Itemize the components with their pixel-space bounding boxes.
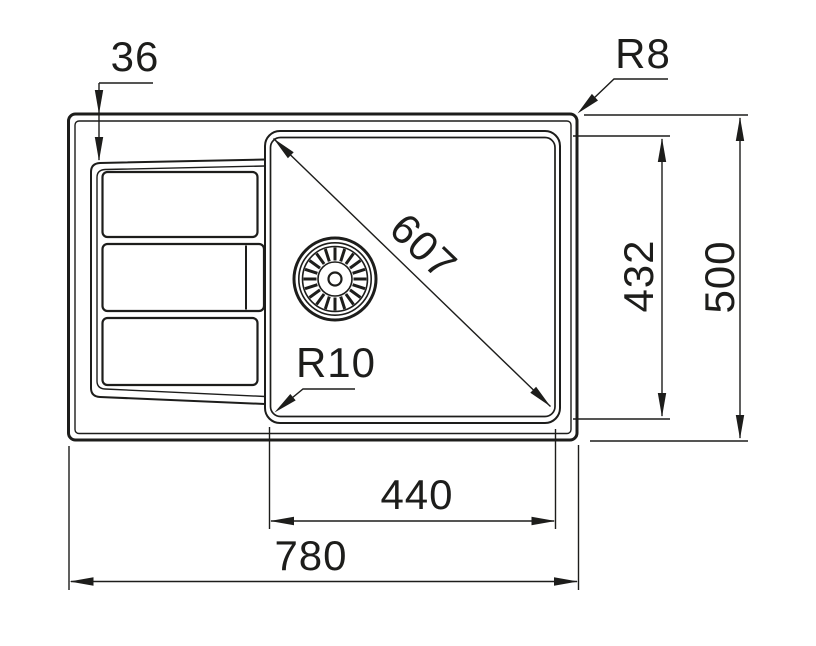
drawing-canvas: 607 36 R8 R10 432 500 440 — [0, 0, 816, 646]
drainboard-groove-bottom — [103, 318, 258, 385]
dimension-overall-width: 780 — [69, 445, 579, 590]
dim-label-500: 500 — [696, 240, 743, 313]
dim-label-440: 440 — [380, 471, 453, 518]
dimension-outer-radius: R8 — [578, 30, 671, 114]
arrowhead — [95, 137, 103, 161]
drain-center-hole — [329, 273, 342, 286]
arrowhead — [532, 517, 556, 525]
dim-label-r8: R8 — [615, 30, 671, 77]
drainboard-groove-top — [103, 172, 258, 237]
dim-label-36: 36 — [111, 33, 160, 80]
drainboard-outer-edge — [91, 160, 265, 405]
drainboard-inner-edge — [97, 166, 265, 397]
arrowhead — [95, 90, 103, 114]
dim-label-432: 432 — [615, 239, 662, 312]
arrowhead — [275, 394, 296, 413]
dimension-inner-depth: 432 — [573, 136, 670, 419]
dimension-bowl-radius: R10 — [275, 339, 377, 413]
drain-inner-ring — [318, 262, 352, 296]
dimension-inner-width: 440 — [270, 427, 556, 529]
arrowhead — [270, 517, 294, 525]
leader-line — [581, 79, 668, 111]
arrowhead — [736, 117, 744, 141]
drainboard-groove-middle — [103, 244, 265, 311]
dim-label-780: 780 — [274, 532, 347, 579]
dim-label-r10: R10 — [296, 339, 376, 386]
dimension-edge-inset: 36 — [95, 33, 160, 161]
dim-label-607: 607 — [381, 204, 466, 289]
drain-spokes — [304, 248, 367, 311]
arrowhead — [658, 138, 666, 162]
arrowhead — [70, 577, 94, 585]
arrowhead — [274, 139, 294, 159]
arrowhead — [530, 387, 550, 407]
arrowhead — [736, 415, 744, 439]
dimension-overall-depth: 500 — [584, 115, 748, 441]
arrowhead — [554, 577, 578, 585]
sink-technical-drawing: 607 36 R8 R10 432 500 440 — [0, 0, 816, 646]
drainboard — [91, 160, 265, 405]
arrowhead — [658, 393, 666, 417]
drain-strainer — [294, 238, 376, 320]
